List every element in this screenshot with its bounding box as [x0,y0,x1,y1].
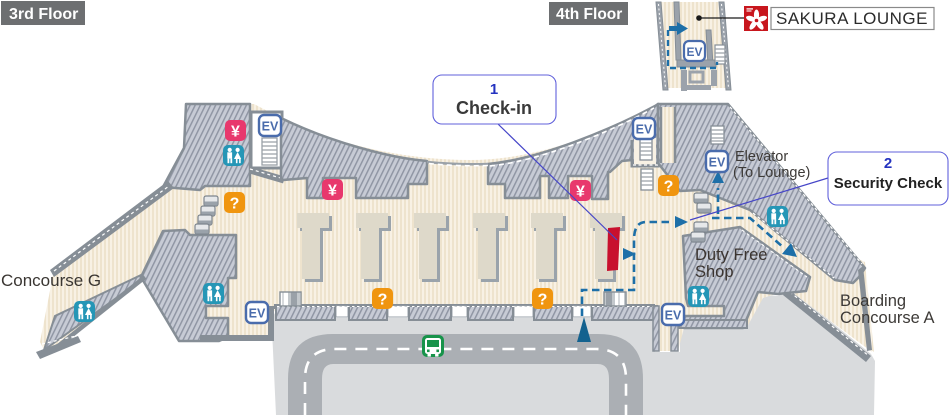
svg-text:EV: EV [249,307,266,321]
svg-text:Check-in: Check-in [456,98,532,118]
svg-text:EV: EV [262,120,279,134]
svg-text:?: ? [664,179,674,196]
svg-text:EV: EV [636,123,653,137]
svg-text:?: ? [538,292,548,309]
svg-text:1: 1 [490,81,498,98]
svg-text:Concourse G: Concourse G [1,271,101,290]
svg-text:Security Check: Security Check [834,175,943,192]
svg-text:¥: ¥ [576,184,585,201]
svg-text:?: ? [378,292,388,309]
svg-text:Duty Free: Duty Free [695,246,767,264]
svg-text:Concourse A: Concourse A [840,309,934,327]
svg-text:4th Floor: 4th Floor [556,6,622,23]
svg-text:¥: ¥ [231,124,240,141]
svg-text:Boarding: Boarding [840,292,906,310]
svg-text:3rd Floor: 3rd Floor [9,6,78,23]
svg-text:EV: EV [665,309,682,323]
svg-text:(To Lounge): (To Lounge) [733,165,810,181]
svg-text:SAKURA LOUNGE: SAKURA LOUNGE [776,9,928,28]
svg-text:EV: EV [686,45,702,59]
svg-text:¥: ¥ [328,183,337,200]
svg-text:Shop: Shop [695,263,734,281]
svg-text:EV: EV [709,156,726,170]
svg-text:Elevator: Elevator [735,149,788,165]
svg-text:2: 2 [884,155,892,172]
svg-text:?: ? [230,196,240,213]
